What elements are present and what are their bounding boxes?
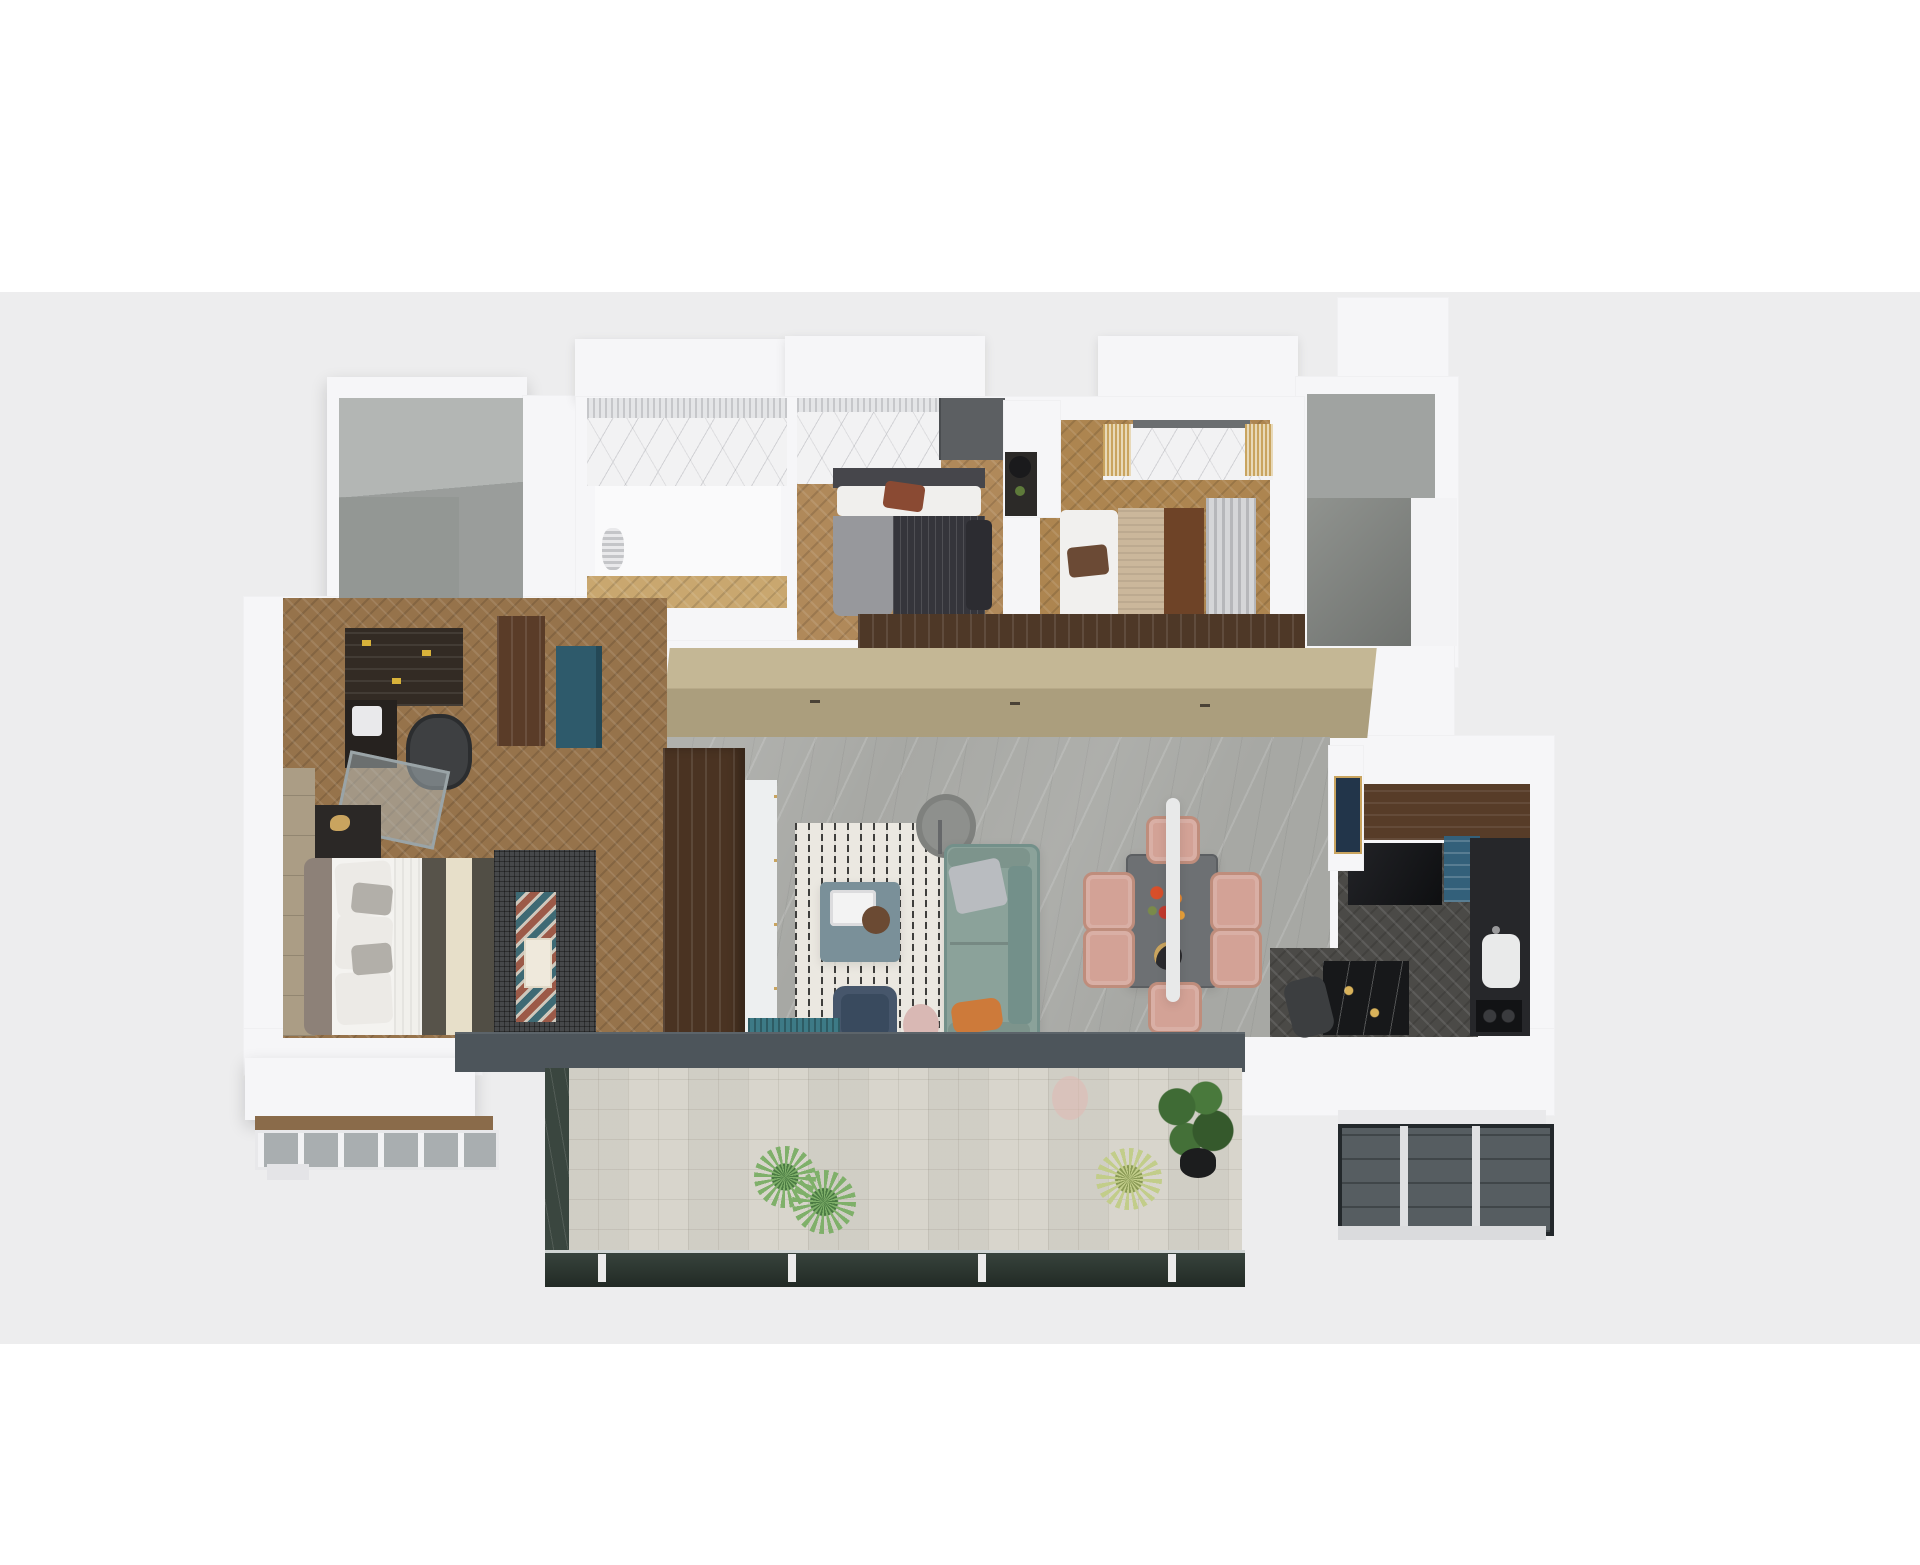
bedroom3-accent-pillow [1067,544,1110,578]
dining-chair-left-2 [1083,928,1135,988]
kitchen-island [1323,961,1409,1035]
study-teal-cabinet [556,646,602,748]
roof-slab-dressing [575,339,787,401]
fiddle-plant-pot [1180,1148,1216,1178]
bedroom2-accent-pillow [882,480,925,512]
sliding-door-track [455,1032,1245,1072]
floorplan-render [0,0,1920,1565]
master-bed-cream-runner [446,858,472,1035]
tv-console-white [745,780,777,1054]
dressing-vanity-table [595,486,781,582]
bedroom2-side-cushions [966,520,992,610]
master-bed-pillow-3 [335,971,394,1026]
dining-chair-right-2 [1210,928,1262,988]
master-bed-headboard [304,858,332,1035]
kitchen-sink [1482,934,1520,988]
void-right-step [1411,498,1457,646]
balustrade-post-4 [1168,1254,1176,1282]
kitchen-bay-windows [1338,1124,1554,1236]
sofa-back-cushions [1008,866,1032,1024]
dressing-curtain [587,398,787,418]
kitchen-artwork [1334,776,1362,854]
bedroom2-wardrobe [939,398,1005,460]
kitchen-cooktop [1476,1000,1522,1032]
master-bay-step [267,1164,309,1180]
kitchen-bay-mullion-1 [1400,1126,1408,1226]
kitchen-faucet [1492,926,1500,934]
bookshelf-yellow-books-3 [392,678,401,684]
bedroom2-gray-blanket [833,516,893,616]
tv-console-gold-trim [774,780,777,1054]
bedroom3-tassel-left [1103,424,1131,476]
void-right-upper-floor [1307,394,1435,498]
coffee-table-basket [862,906,890,934]
roof-slab-bedroom2 [785,336,985,399]
sofa-seat-seam [950,942,1008,945]
master-nightstand-gold-decor [330,815,350,831]
dressing-decor [602,528,624,570]
dining-chair-right-1 [1210,872,1262,932]
master-bed-gray-pillow-1 [351,882,394,916]
balustrade-post-2 [788,1254,796,1282]
master-bay-slab [245,1058,475,1120]
master-bed-olive-band-1 [422,858,446,1035]
corridor-walnut-strip [858,614,1305,648]
wardrobe-handle-3 [1200,704,1210,707]
corridor-wardrobe [660,648,1376,738]
floor-lamp-stem [938,820,942,854]
south-wall-right [1242,1028,1555,1116]
kitchen-bay-mullion-2 [1472,1126,1480,1226]
dressing-marble-counter [587,418,787,486]
bookshelf-yellow-books-2 [422,650,431,656]
master-feather-card [524,938,552,988]
wardrobe-handle-2 [1010,702,1020,705]
dining-pendant-bar [1166,798,1180,1002]
wardrobe-handle-1 [810,700,820,703]
void-right-lower-floor [1307,498,1411,646]
kitchen-bay-bottom-sill [1338,1226,1546,1240]
study-brown-cabinet [497,616,545,746]
kitchen-walnut-counter [1358,784,1530,840]
master-bed-olive-band-2 [472,858,494,1035]
bookshelf-yellow-books-1 [362,640,371,646]
bedroom3-tassel-right [1245,424,1273,476]
balcony-stone-bottom [545,1250,1245,1287]
bedroom3-window-bar [1133,420,1250,428]
roof-slab-bedroom3 [1098,336,1298,400]
balustrade-post-3 [978,1254,986,1282]
void-top-left-floor-dark [339,497,459,599]
bedroom3-lamp [1009,456,1031,478]
balustrade-post-1 [598,1254,606,1282]
dining-chair-left-1 [1083,872,1135,932]
navy-armchair-seat [841,994,889,1036]
lamp-reflection [1052,1076,1088,1120]
tv-partition-walnut [663,748,745,1056]
balcony-plant-green-b [792,1170,856,1234]
master-bed-sheet [394,858,422,1035]
master-bed-gray-pillow-2 [351,942,393,975]
study-desk-machine [352,706,382,736]
